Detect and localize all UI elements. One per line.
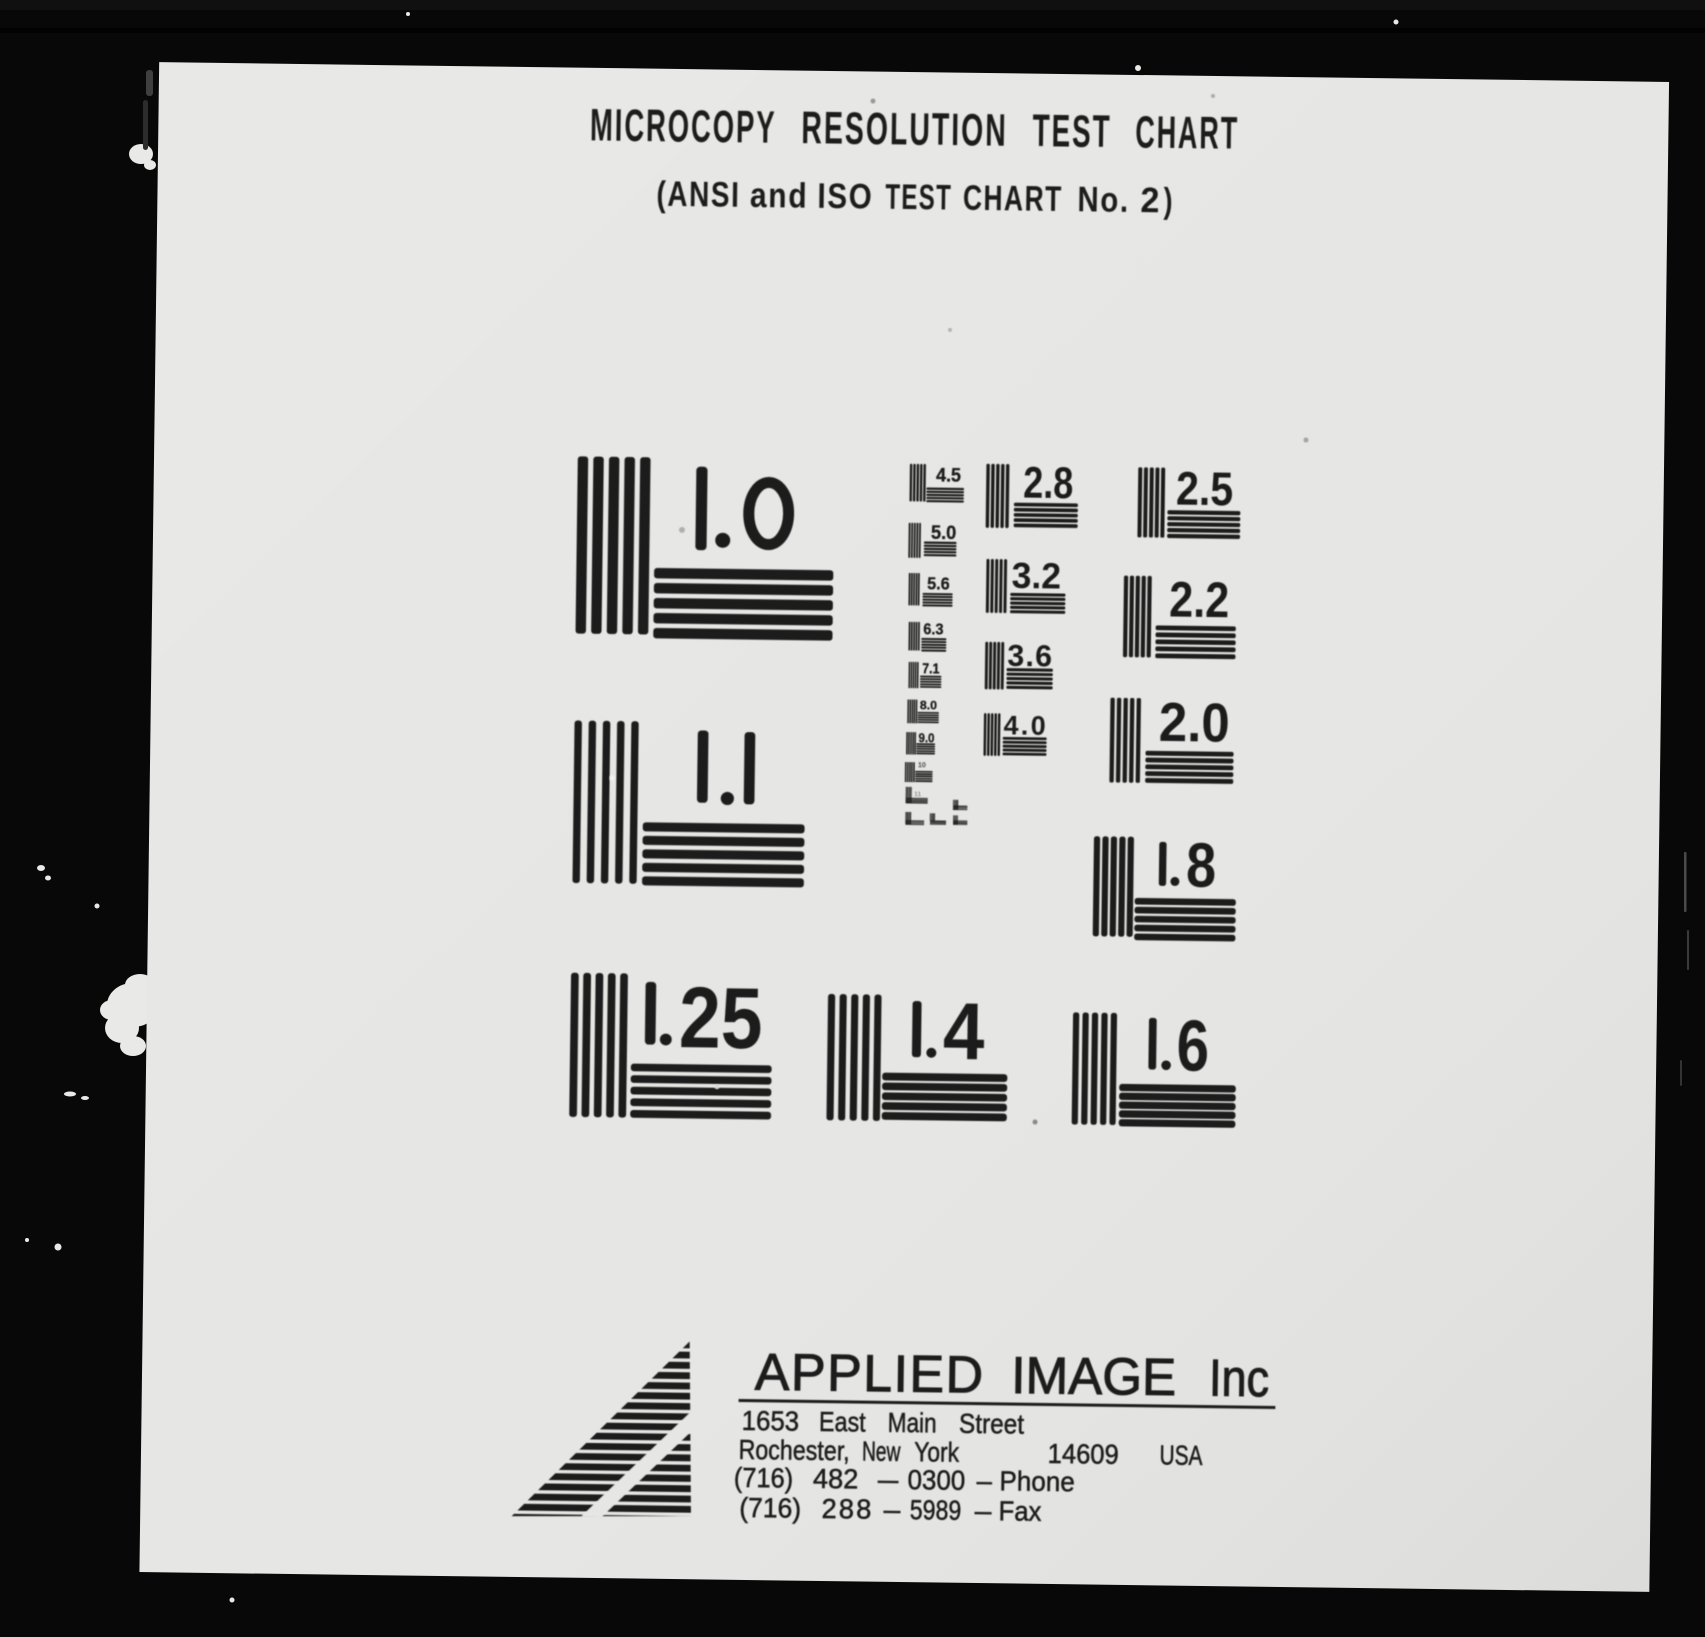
svg-text:RESOLUTION: RESOLUTION <box>801 102 1008 156</box>
svg-text:5.6: 5.6 <box>927 573 950 593</box>
svg-text:(716): (716) <box>734 1462 794 1494</box>
svg-text:and: and <box>750 175 809 216</box>
svg-text:9.0: 9.0 <box>918 731 934 745</box>
svg-text:2.5: 2.5 <box>1176 462 1234 516</box>
svg-text:New: New <box>862 1436 901 1468</box>
svg-text:0300: 0300 <box>907 1464 965 1496</box>
svg-text:2.8: 2.8 <box>1023 459 1074 509</box>
svg-text:ISO: ISO <box>817 176 873 217</box>
svg-text:Street: Street <box>959 1408 1025 1440</box>
svg-text:TEST: TEST <box>1032 105 1112 157</box>
svg-text:25: 25 <box>678 970 763 1067</box>
svg-text:5.0: 5.0 <box>931 522 957 544</box>
svg-text:4: 4 <box>942 987 985 1078</box>
svg-text:APPLIED: APPLIED <box>754 1343 983 1404</box>
svg-text:4.0: 4.0 <box>1003 710 1045 741</box>
svg-text:Phone: Phone <box>999 1465 1075 1497</box>
svg-text:USA: USA <box>1159 1439 1203 1471</box>
svg-text:CHART: CHART <box>963 178 1063 219</box>
svg-text:Main: Main <box>888 1407 937 1439</box>
svg-text:CHART: CHART <box>1135 106 1239 158</box>
svg-text:2: 2 <box>1140 180 1161 220</box>
svg-text:10: 10 <box>918 761 926 769</box>
svg-text:1653: 1653 <box>742 1405 800 1437</box>
svg-text:11: 11 <box>914 791 922 798</box>
svg-text:MICROCOPY: MICROCOPY <box>590 99 777 152</box>
svg-text:4.5: 4.5 <box>936 464 961 486</box>
svg-text:6.3: 6.3 <box>923 621 943 638</box>
svg-text:(ANSI: (ANSI <box>656 174 740 215</box>
svg-text:482: 482 <box>813 1463 859 1495</box>
svg-text:3.6: 3.6 <box>1007 639 1052 674</box>
svg-text:7.1: 7.1 <box>922 661 940 677</box>
svg-text:2.2: 2.2 <box>1169 571 1230 628</box>
svg-text:East: East <box>819 1406 866 1438</box>
svg-text:5989: 5989 <box>910 1494 962 1526</box>
svg-text:IMAGE: IMAGE <box>1011 1347 1177 1407</box>
svg-text:–: – <box>975 1495 993 1526</box>
svg-text:2.0: 2.0 <box>1158 691 1230 754</box>
svg-text:Fax: Fax <box>998 1495 1042 1527</box>
svg-text:): ) <box>1163 180 1174 220</box>
svg-text:Inc: Inc <box>1209 1349 1270 1408</box>
svg-text:–: – <box>884 1494 902 1525</box>
svg-text:No.: No. <box>1077 179 1130 220</box>
svg-text:TEST: TEST <box>885 177 952 218</box>
svg-text:(716): (716) <box>739 1492 801 1524</box>
svg-text:8: 8 <box>1186 831 1217 901</box>
svg-text:–: – <box>977 1465 993 1496</box>
svg-text:–: – <box>878 1464 900 1495</box>
svg-text:6: 6 <box>1176 1007 1210 1087</box>
svg-text:288: 288 <box>821 1493 871 1525</box>
svg-text:8.0: 8.0 <box>920 698 938 712</box>
svg-text:3.2: 3.2 <box>1011 556 1061 597</box>
